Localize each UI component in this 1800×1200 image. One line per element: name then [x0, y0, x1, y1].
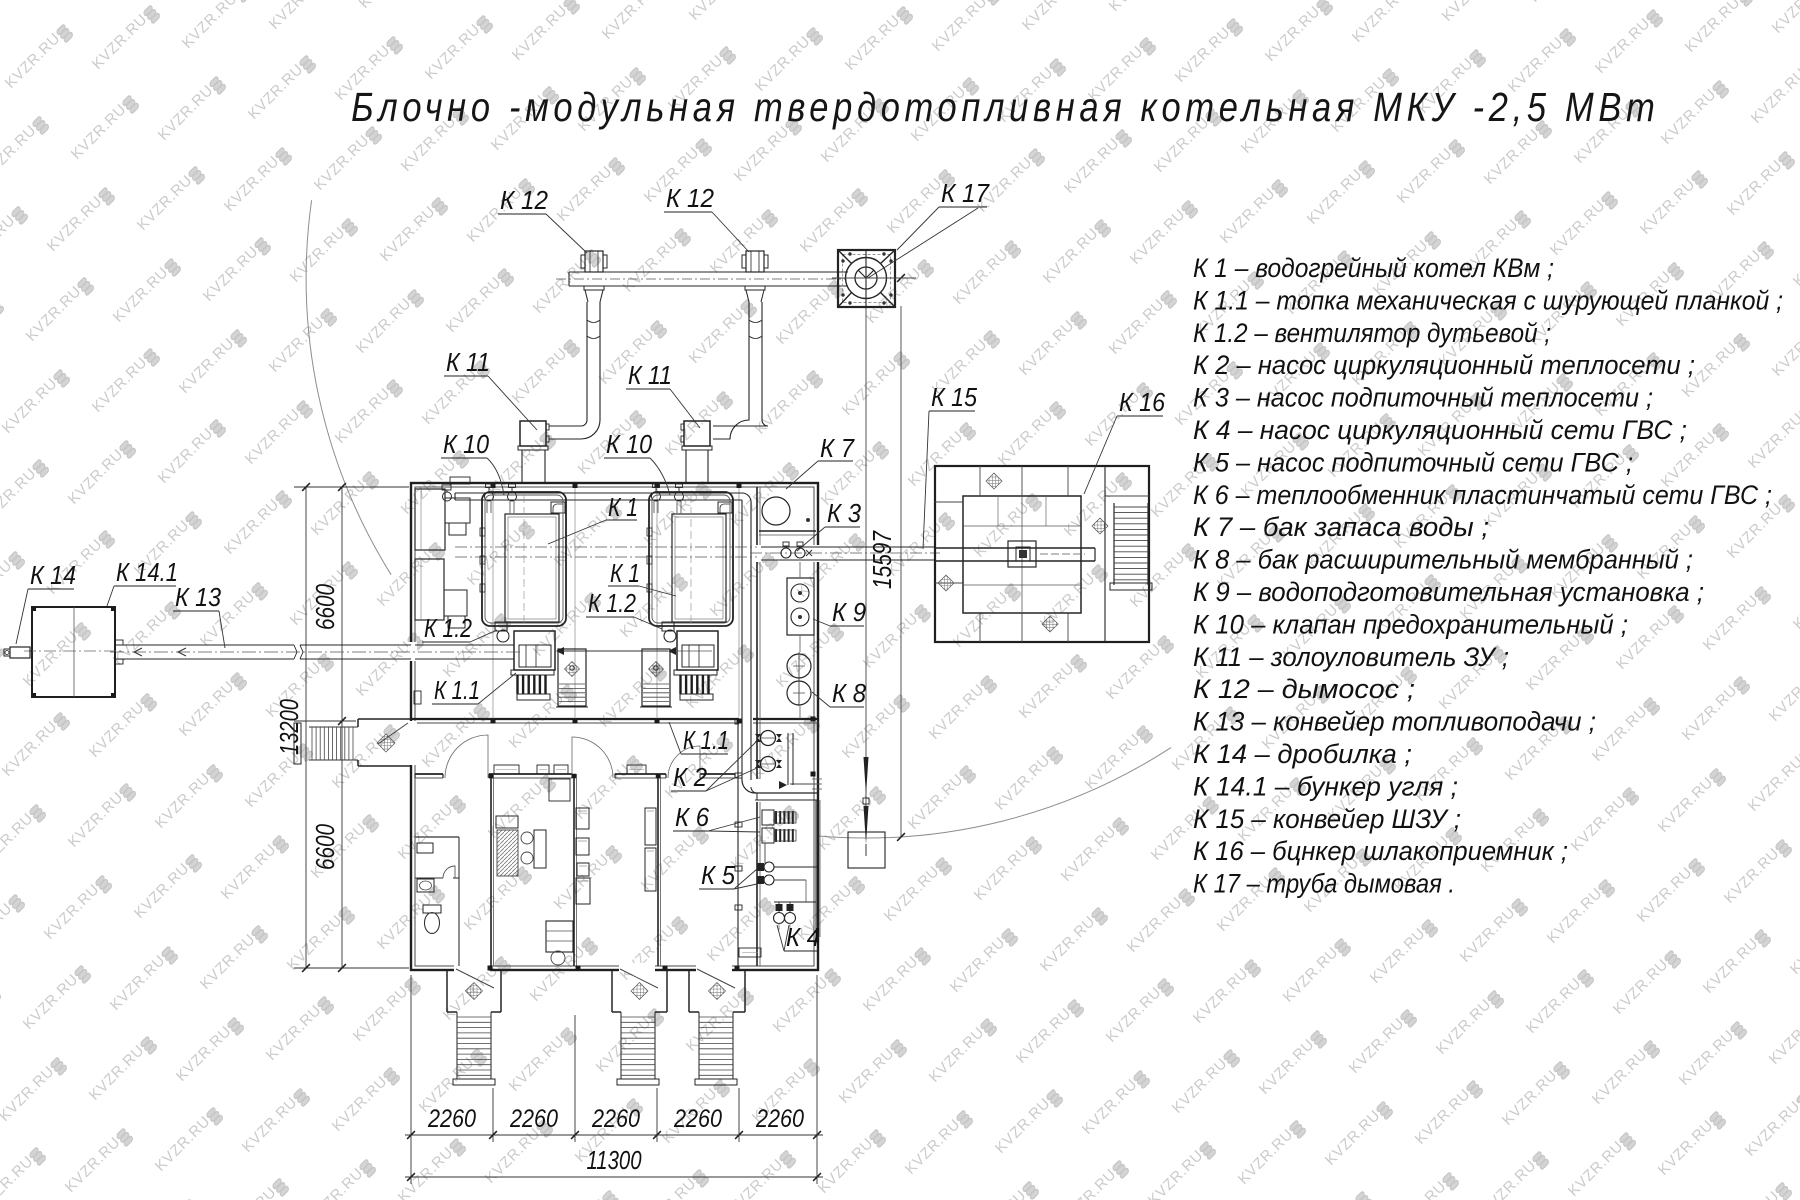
svg-text:К 13 – конвейер топливопода: К 13 – конвейер топливоподачи ; [1193, 707, 1596, 737]
svg-text:К 11: К 11 [628, 360, 672, 390]
svg-text:К 10: К 10 [443, 429, 489, 459]
svg-text:К 7 – бак запаса воды ;: К 7 – бак запаса воды ; [1193, 512, 1489, 542]
svg-text:2260: 2260 [591, 1105, 640, 1133]
svg-text:К 6 – теплообменник пластин: К 6 – теплообменник пластинчатый сети ГВ… [1193, 480, 1772, 510]
svg-text:К 3 – насос подпиточный теп: К 3 – насос подпиточный теплосети ; [1193, 383, 1653, 413]
svg-text:2260: 2260 [673, 1105, 722, 1133]
svg-text:К 15 – конвейер ШЗУ ;: К 15 – конвейер ШЗУ ; [1193, 804, 1461, 834]
svg-text:К 17 – труба дымовая .: К 17 – труба дымовая . [1193, 869, 1455, 899]
svg-text:К 1.1: К 1.1 [683, 725, 729, 755]
svg-text:К 8 – бак расширительный ме: К 8 – бак расширительный мембранный ; [1193, 545, 1693, 575]
svg-text:2260: 2260 [427, 1105, 476, 1133]
svg-text:К 1.2 – вентилятор дутьевой: К 1.2 – вентилятор дутьевой ; [1193, 318, 1551, 348]
svg-text:2260: 2260 [755, 1105, 804, 1133]
svg-text:К 1.1: К 1.1 [434, 675, 480, 705]
svg-text:К 12: К 12 [666, 183, 715, 213]
svg-text:15597: 15597 [867, 530, 897, 589]
svg-text:К 16 – бцнкер шлакоприемник: К 16 – бцнкер шлакоприемник ; [1193, 836, 1568, 866]
svg-text:К 9: К 9 [832, 597, 866, 627]
svg-text:К 4: К 4 [786, 922, 820, 952]
svg-text:К 5 – насос подпиточный сет: К 5 – насос подпиточный сети ГВС ; [1193, 447, 1633, 477]
svg-text:К 3: К 3 [827, 498, 861, 528]
svg-text:К 14.1 – бункер угля ;: К 14.1 – бункер угля ; [1193, 771, 1458, 801]
svg-text:К 1.2: К 1.2 [588, 588, 636, 618]
svg-text:К 10 – клапан предохранител: К 10 – клапан предохранительный ; [1193, 609, 1628, 639]
svg-text:К 7: К 7 [820, 433, 855, 463]
svg-text:13200: 13200 [274, 699, 304, 755]
svg-text:К 14 – дробилка ;: К 14 – дробилка ; [1193, 739, 1412, 769]
svg-text:К 14.1: К 14.1 [116, 557, 178, 587]
svg-text:К 17: К 17 [941, 178, 990, 208]
svg-text:К 11: К 11 [446, 347, 490, 377]
svg-text:К 2 – насос циркуляционный: К 2 – насос циркуляционный теплосети ; [1193, 350, 1695, 380]
svg-text:К 5: К 5 [701, 860, 735, 890]
svg-text:6600: 6600 [310, 824, 340, 870]
svg-text:К 6: К 6 [675, 802, 709, 832]
svg-text:К 1: К 1 [610, 558, 640, 588]
svg-text:Блочно -модульная твердотоплив: Блочно -модульная твердотопливная котель… [351, 85, 1655, 130]
svg-text:6600: 6600 [310, 584, 340, 630]
svg-text:К 1.1 – топка механическая: К 1.1 – топка механическая с шурующей пл… [1193, 285, 1783, 315]
svg-text:11300: 11300 [587, 1145, 642, 1175]
svg-text:К 4 – насос циркуляционный: К 4 – насос циркуляционный сети ГВС ; [1193, 415, 1687, 445]
svg-text:К 12 – дымосос ;: К 12 – дымосос ; [1193, 674, 1415, 704]
svg-text:К 1.2: К 1.2 [424, 613, 472, 643]
svg-text:К 16: К 16 [1119, 387, 1165, 417]
svg-text:К 15: К 15 [931, 382, 977, 412]
svg-text:К 2: К 2 [673, 762, 707, 792]
svg-text:К 1: К 1 [608, 492, 638, 522]
svg-text:К 11 – золоуловитель ЗУ ;: К 11 – золоуловитель ЗУ ; [1193, 642, 1509, 672]
svg-text:К 13: К 13 [175, 582, 221, 612]
svg-text:К 14: К 14 [30, 560, 76, 590]
svg-text:2260: 2260 [509, 1105, 558, 1133]
svg-text:К 8: К 8 [832, 678, 866, 708]
svg-text:К 12: К 12 [500, 185, 549, 215]
svg-text:К 9 – водоподготовительная: К 9 – водоподготовительная установка ; [1193, 577, 1704, 607]
svg-text:К 10: К 10 [606, 429, 652, 459]
svg-text:К 1 – водогрейный котел КВм: К 1 – водогрейный котел КВм ; [1193, 253, 1554, 283]
